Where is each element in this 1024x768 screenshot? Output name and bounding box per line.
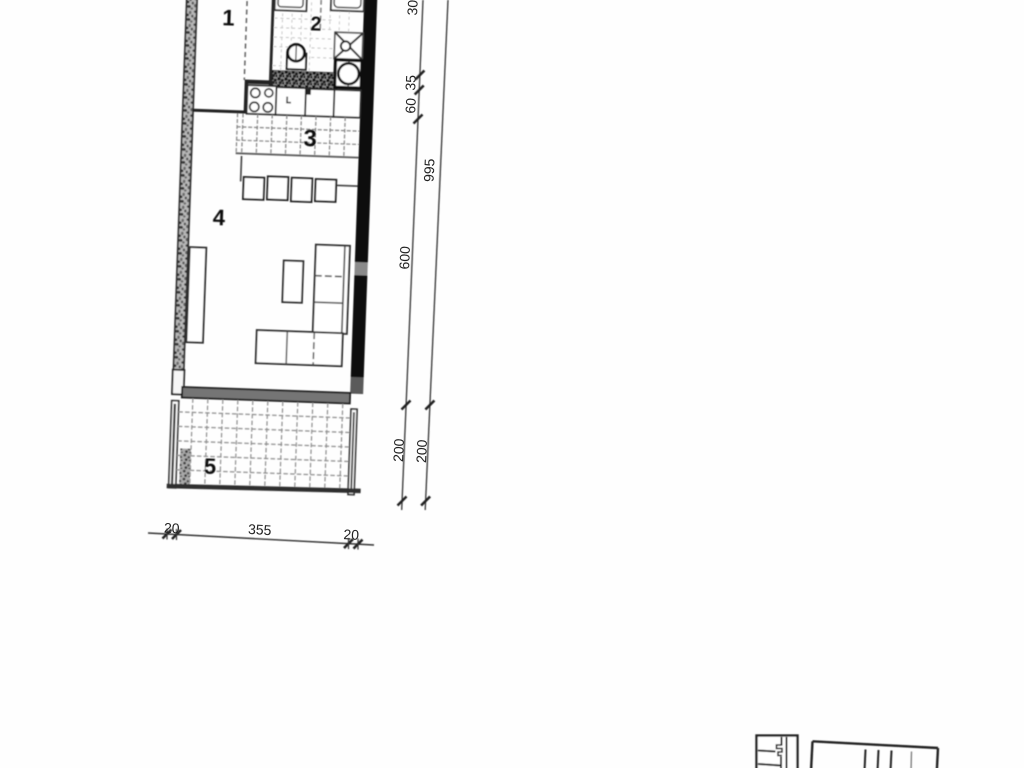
svg-text:200: 200 <box>390 438 407 462</box>
svg-text:600: 600 <box>396 246 413 270</box>
svg-text:35: 35 <box>402 74 419 90</box>
svg-text:20: 20 <box>343 526 360 543</box>
svg-text:1: 1 <box>222 5 235 30</box>
svg-text:60: 60 <box>402 97 419 113</box>
svg-text:995: 995 <box>421 158 438 182</box>
svg-text:5: 5 <box>203 454 216 479</box>
svg-text:355: 355 <box>248 521 272 538</box>
svg-text:2: 2 <box>310 13 322 35</box>
svg-text:4: 4 <box>212 205 226 230</box>
svg-text:300: 300 <box>404 0 421 16</box>
svg-text:200: 200 <box>413 439 430 463</box>
svg-text:3: 3 <box>303 125 317 152</box>
svg-text:20: 20 <box>164 520 181 537</box>
